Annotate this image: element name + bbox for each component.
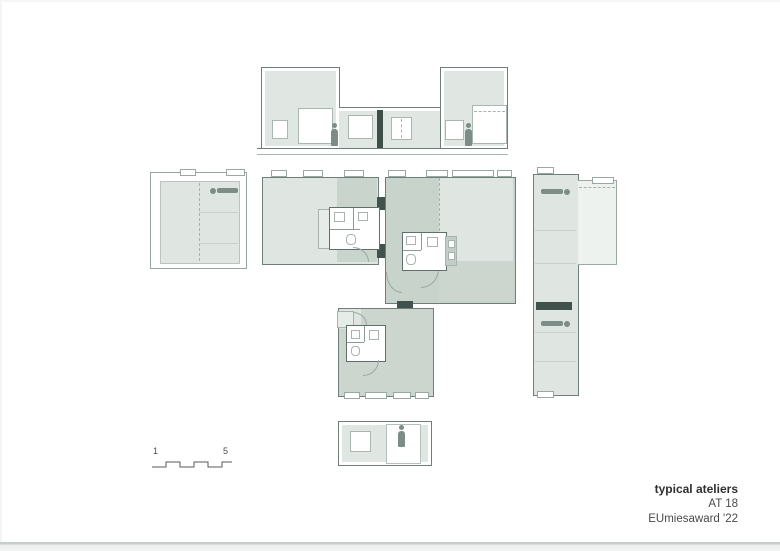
caption-title: typical ateliers (648, 481, 738, 497)
page-edge-bottom (0, 542, 780, 551)
window-marker (344, 392, 360, 399)
section-wall-slab (377, 110, 383, 148)
caption-award: EUmiesaward '22 (648, 512, 738, 527)
person-lying-icon (210, 186, 239, 195)
window-marker (226, 169, 245, 176)
page-edge-top (0, 0, 780, 2)
plan-main-right-room-medium-zone (439, 261, 513, 301)
window-marker (344, 170, 364, 177)
window-marker (303, 170, 323, 177)
window-marker (388, 170, 406, 177)
section-panel-middle (348, 115, 373, 139)
scale-start-label: 1 (153, 446, 158, 456)
person-standing-icon (397, 425, 406, 447)
bathroom-core-lower (346, 325, 386, 362)
caption-project: AT 18 (648, 497, 738, 512)
window-marker (452, 170, 494, 177)
person-lying-icon (538, 187, 570, 196)
window-marker (592, 177, 614, 184)
window-marker (537, 167, 554, 174)
bathroom-core-left (329, 207, 380, 250)
bathroom-core-right (402, 232, 447, 271)
section-window-small (272, 120, 288, 139)
plan-left-grid-line (199, 243, 238, 244)
scale-bar: 1 5 (150, 446, 234, 470)
plan-right-wing-terrace (578, 180, 617, 265)
plan-left-grid-line (199, 212, 238, 213)
scale-bar-line (150, 458, 234, 470)
window-marker (537, 391, 554, 398)
plan-left-partition-line (199, 183, 200, 261)
window-marker (415, 392, 429, 399)
section-panel-large-left (298, 108, 333, 144)
wing-grid-line (535, 263, 576, 264)
caption-block: typical ateliers AT 18 EUmiesaward '22 (648, 481, 738, 527)
wing-grid-line (535, 332, 576, 333)
window-marker (393, 392, 411, 399)
wing-grid-line (535, 230, 576, 231)
window-marker (271, 170, 287, 177)
section-window-right (445, 120, 464, 140)
window-marker (365, 392, 387, 399)
section-panel-large-right (472, 105, 507, 144)
section-panel-door (391, 117, 412, 140)
page-edge-left (0, 0, 3, 551)
terrace-grid-line (579, 187, 615, 188)
window-marker (497, 170, 512, 177)
section-small-window (350, 431, 371, 452)
plan-right-wing-strip (533, 174, 579, 396)
drawing-sheet: 1 5 typical ateliers AT 18 EUmiesaward '… (0, 0, 780, 551)
wing-grid-line (535, 361, 576, 362)
window-marker (180, 169, 196, 176)
scale-end-label: 5 (223, 446, 228, 456)
person-standing-icon (330, 123, 339, 148)
section-ground-line (257, 148, 508, 155)
person-lying-icon (538, 319, 570, 328)
window-marker (426, 170, 448, 177)
wall-block (536, 302, 572, 310)
core-cabinet (445, 236, 457, 266)
